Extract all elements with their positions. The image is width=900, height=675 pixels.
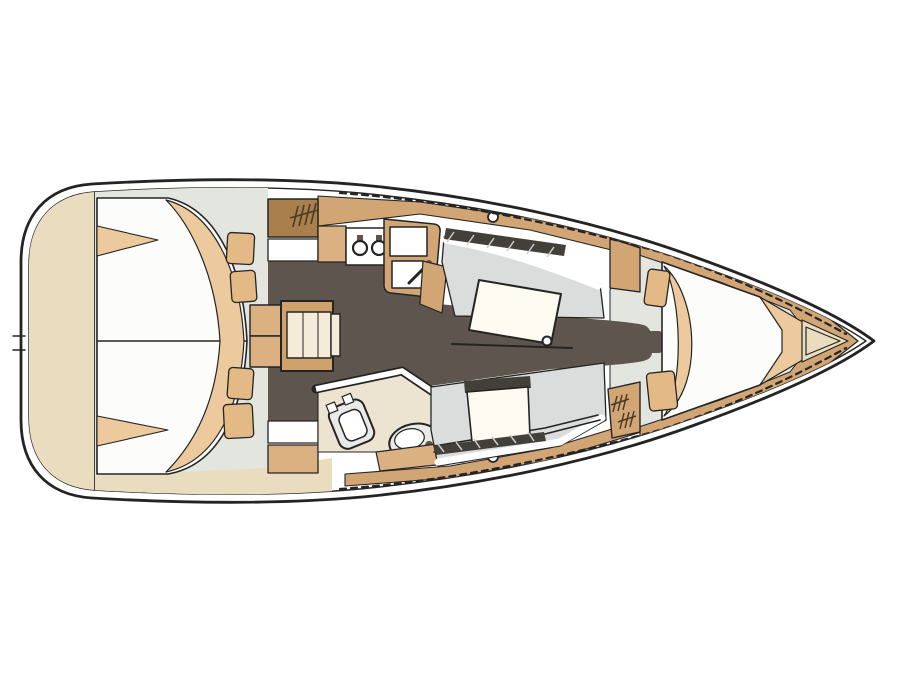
pillow bbox=[644, 269, 671, 308]
pillow bbox=[223, 403, 254, 438]
pillow bbox=[646, 371, 678, 412]
pillow bbox=[226, 232, 255, 264]
table-leg bbox=[543, 337, 552, 346]
galley-sink bbox=[390, 227, 427, 256]
table-leaf bbox=[287, 312, 331, 358]
locker bbox=[268, 239, 318, 261]
boat-floor-plan-page bbox=[0, 0, 900, 675]
galley-return-counter bbox=[420, 261, 447, 313]
table-seat-box bbox=[250, 336, 281, 367]
saloon-folding-table bbox=[250, 301, 340, 371]
locker bbox=[268, 445, 318, 473]
settee-table bbox=[467, 387, 530, 442]
pillow bbox=[230, 270, 257, 303]
pillow bbox=[227, 367, 254, 400]
sailboat-layout-diagram bbox=[0, 0, 900, 675]
galley-counter bbox=[318, 226, 346, 262]
table-leaf-flap bbox=[331, 314, 340, 356]
table-seat-box bbox=[250, 305, 281, 336]
locker bbox=[268, 421, 318, 443]
